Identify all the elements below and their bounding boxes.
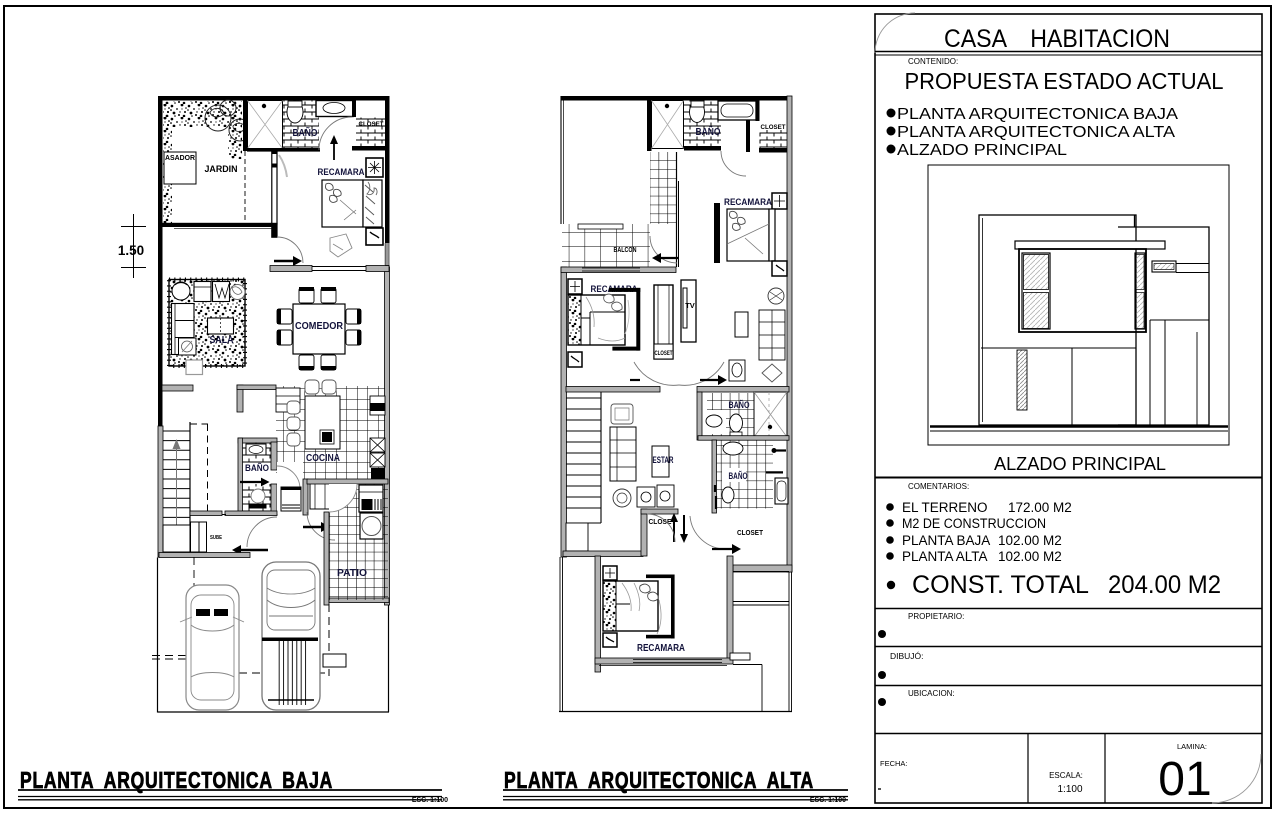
svg-text:M2 DE CONSTRUCCION: M2 DE CONSTRUCCION bbox=[902, 516, 1046, 531]
svg-text:PATIO: PATIO bbox=[337, 567, 367, 579]
svg-text:PLANTA BAJA: PLANTA BAJA bbox=[902, 533, 990, 548]
svg-text:COMENTARIOS:: COMENTARIOS: bbox=[908, 482, 969, 491]
svg-text:FECHA:: FECHA: bbox=[880, 759, 908, 768]
svg-text:102.00 M2: 102.00 M2 bbox=[998, 533, 1062, 548]
svg-text:BALCON: BALCON bbox=[614, 247, 637, 254]
svg-text:BAÑO: BAÑO bbox=[696, 125, 721, 138]
svg-text:RECAMARA: RECAMARA bbox=[724, 197, 772, 208]
svg-text:ESCALA:: ESCALA: bbox=[1049, 771, 1083, 780]
svg-text:UBICACION:: UBICACION: bbox=[908, 689, 955, 698]
svg-text:CONTENIDO:: CONTENIDO: bbox=[908, 57, 958, 66]
svg-text:ESC. 1:100: ESC. 1:100 bbox=[412, 797, 448, 804]
svg-text:ESC. 1:100: ESC. 1:100 bbox=[810, 797, 846, 804]
svg-text:BAÑO: BAÑO bbox=[729, 471, 748, 481]
svg-text:RECAMARA: RECAMARA bbox=[318, 167, 365, 178]
svg-text:SUBE: SUBE bbox=[210, 535, 222, 541]
svg-text:102.00 M2: 102.00 M2 bbox=[998, 549, 1062, 564]
svg-text:ASADOR: ASADOR bbox=[165, 153, 196, 162]
svg-text:CASA HABITACION: CASA HABITACION bbox=[944, 25, 1170, 53]
svg-text:CONST. TOTAL: CONST. TOTAL bbox=[912, 571, 1089, 599]
svg-text:CLOSET: CLOSET bbox=[359, 121, 384, 128]
svg-text:RECAMARA: RECAMARA bbox=[637, 642, 685, 654]
svg-text:DIBUJÓ:: DIBUJÓ: bbox=[890, 651, 924, 661]
svg-text:BAÑO: BAÑO bbox=[245, 463, 269, 474]
svg-text:ALZADO PRINCIPAL: ALZADO PRINCIPAL bbox=[897, 142, 1067, 159]
svg-text:COMEDOR: COMEDOR bbox=[295, 320, 343, 332]
svg-text:PLANTA ARQUITECTONICA ALTA: PLANTA ARQUITECTONICA ALTA bbox=[897, 124, 1175, 141]
svg-text:ESTAR: ESTAR bbox=[653, 455, 674, 465]
svg-text:PROPIETARIO:: PROPIETARIO: bbox=[908, 612, 964, 621]
svg-text:LAMINA:: LAMINA: bbox=[1177, 742, 1207, 751]
svg-text:ALZADO PRINCIPAL: ALZADO PRINCIPAL bbox=[994, 453, 1166, 474]
svg-text:TV: TV bbox=[685, 301, 695, 310]
svg-text:CLOSET: CLOSET bbox=[761, 124, 786, 131]
svg-text:PROPUESTA ESTADO ACTUAL: PROPUESTA ESTADO ACTUAL bbox=[905, 68, 1224, 94]
svg-text:SALA: SALA bbox=[210, 335, 234, 346]
svg-text:1.50: 1.50 bbox=[118, 243, 144, 258]
svg-text:CLOSET: CLOSET bbox=[737, 528, 763, 537]
svg-text:PLANTA ALTA: PLANTA ALTA bbox=[902, 549, 988, 564]
svg-text:BAÑO: BAÑO bbox=[729, 400, 750, 410]
svg-text:CLOSET: CLOSET bbox=[655, 351, 673, 357]
svg-text:PLANTA ARQUITECTONICA BAJA: PLANTA ARQUITECTONICA BAJA bbox=[897, 106, 1178, 123]
svg-text:BAÑO: BAÑO bbox=[293, 126, 318, 139]
svg-text:EL TERRENO: EL TERRENO bbox=[902, 500, 988, 515]
svg-text:COCINA: COCINA bbox=[306, 453, 340, 464]
svg-text:172.00 M2: 172.00 M2 bbox=[1008, 500, 1072, 515]
svg-text:204.00 M2: 204.00 M2 bbox=[1108, 571, 1221, 599]
svg-text:1:100: 1:100 bbox=[1057, 784, 1082, 795]
svg-text:01: 01 bbox=[1158, 753, 1211, 806]
svg-text:JARDIN: JARDIN bbox=[205, 164, 238, 175]
